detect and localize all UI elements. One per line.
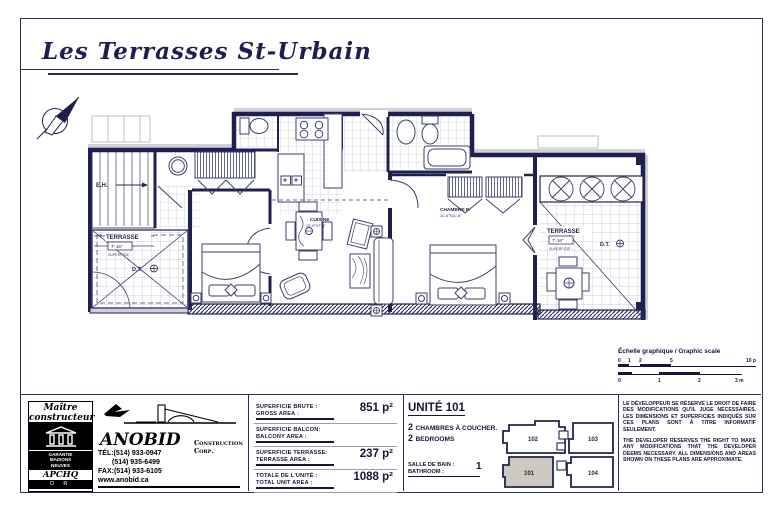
- title-underline-2: [48, 73, 298, 75]
- terrace-left-note: SUPERFICIE :: [108, 253, 132, 257]
- scale-feet-tick: 10 p: [746, 358, 756, 364]
- terrace-left-dim: 7'-16": [111, 244, 123, 249]
- scale-meter-tick: 1: [658, 378, 661, 384]
- areas-table: SUPERFICIE BRUTE : GROSS AREA : 851 p² S…: [252, 399, 399, 492]
- company-tel1: TÉL:(514) 933-0947: [98, 450, 161, 457]
- bedroom-left-furniture: [191, 244, 271, 303]
- terrace-right-dim: 7'-16": [552, 238, 564, 243]
- area-label-en: TERRASSE AREA :: [256, 457, 327, 464]
- unit-bath-label: SALLE DE BAIN : BATHROOM :: [408, 462, 454, 475]
- area-label-en: BALCONY AREA :: [256, 434, 321, 441]
- keyplan-label-103: 103: [588, 437, 599, 443]
- area-underline: [256, 487, 334, 489]
- kitchen-dim: 10'-0"X7'-6": [306, 224, 326, 228]
- bedrooms-count: 2: [408, 433, 413, 443]
- company-website[interactable]: www.anobid.ca: [98, 477, 149, 484]
- floor-plan-drawing: E.H.: [88, 106, 648, 338]
- area-value: 1088 p²: [353, 471, 393, 483]
- terrace-left-label: TERRASSE: [106, 235, 139, 241]
- keyplan-label-102: 102: [528, 437, 539, 443]
- bath-label-en: BATHROOM :: [408, 469, 454, 476]
- title-underline-1: [21, 69, 279, 70]
- company-fax: FAX:(514) 933-6105: [98, 468, 162, 475]
- table-row: SUPERFICIE TERRASSE: TERRASSE AREA : 237…: [254, 447, 397, 470]
- bedroom-label: CHAMBRE P.: [440, 207, 470, 213]
- bedrooms-fr-text: CHAMBRES À COUCHER.: [416, 425, 498, 432]
- badge-association: APCHQ: [29, 469, 92, 480]
- builder-certification-badge: Maître constructeur GARANTIE MAISONS NEU…: [28, 401, 93, 492]
- bath-count: 1: [476, 461, 482, 472]
- titleblock-divider: [20, 394, 761, 395]
- table-row: SUPERFICIE BALCON: BALCONY AREA :: [254, 424, 397, 447]
- legal-disclaimer: LE DÉVELOPPEUR SE RÉSERVE LE DROIT DE FA…: [623, 401, 756, 469]
- unit-bedrooms-fr: 2 CHAMBRES À COUCHER.: [408, 422, 497, 432]
- plan-sheet: Les Terrasses St-Urbain: [0, 0, 781, 505]
- scale-feet-seg: [618, 364, 629, 367]
- unit-title: UNITÉ 101: [408, 402, 465, 416]
- area-label: SUPERFICIE BRUTE : GROSS AREA :: [256, 404, 317, 417]
- area-value: 851 p²: [360, 402, 393, 414]
- legal-text-fr: LE DÉVELOPPEUR SE RÉSERVE LE DROIT DE FA…: [623, 401, 756, 433]
- area-label-en: GROSS AREA :: [256, 411, 317, 418]
- stairs-label: E.H.: [96, 183, 108, 189]
- bedroom-right-furniture: [416, 245, 510, 305]
- scale-meter-tick: 3 m: [735, 378, 744, 384]
- area-label-en: TOTAL UNIT AREA :: [256, 480, 317, 487]
- badge-guarantee: GARANTIE MAISONS NEUVES: [29, 450, 92, 469]
- project-title: Les Terrasses St-Urbain: [42, 38, 372, 65]
- company-block: ANOBID Construction Corp. TÉL:(514) 933-…: [96, 400, 246, 492]
- key-plan: 102 103 101 104: [501, 413, 615, 489]
- scale-feet-seg: [640, 364, 671, 367]
- area-label: SUPERFICIE TERRASSE: TERRASSE AREA :: [256, 450, 327, 463]
- graphic-scale-title: Échelle graphique / Graphic scale: [618, 348, 720, 355]
- terrace-right-label: TERRASSE: [547, 229, 580, 235]
- area-label-fr: SUPERFICIE BALCON:: [256, 427, 321, 434]
- area-label-fr: SUPERFICIE TERRASSE:: [256, 450, 327, 457]
- unit-bedrooms-en: 2 BEDROOMS: [408, 433, 454, 443]
- badge-title-line2: constructeur: [29, 413, 92, 423]
- area-underline: [256, 441, 334, 443]
- bedrooms-en-text: BEDROOMS: [416, 436, 455, 443]
- table-row: SUPERFICIE BRUTE : GROSS AREA : 851 p²: [254, 401, 397, 424]
- area-label-fr: SUPERFICIE BRUTE :: [256, 404, 317, 411]
- scale-feet-bar: [618, 366, 756, 367]
- company-suffix: Construction Corp.: [194, 439, 246, 455]
- scale-meter-tick: 0: [618, 378, 621, 384]
- table-row: TOTALE DE L'UNITÉ : TOTAL UNIT AREA : 10…: [254, 470, 397, 493]
- scale-meter-seg: [659, 372, 700, 375]
- company-name: ANOBID: [100, 430, 181, 450]
- area-underline: [256, 464, 334, 466]
- area-value: 237 p²: [360, 448, 393, 460]
- area-label: TOTALE DE L'UNITÉ : TOTAL UNIT AREA :: [256, 473, 317, 486]
- scale-meter-tick: 2: [698, 378, 701, 384]
- titleblock-vdivider: [248, 395, 249, 491]
- badge-title-line1: Maître: [29, 403, 92, 413]
- titleblock-vdivider: [403, 395, 404, 491]
- area-underline: [256, 418, 334, 420]
- keyplan-label-101: 101: [524, 471, 535, 477]
- company-underline: [98, 486, 240, 488]
- area-label-fr: TOTALE DE L'UNITÉ :: [256, 473, 317, 480]
- drain-left-label: D.T.: [132, 267, 142, 273]
- portico-icon: [29, 423, 92, 450]
- company-tel2: (514) 935-6499: [112, 459, 160, 466]
- bath-underline: [408, 476, 480, 477]
- north-arrow-icon: [30, 90, 86, 146]
- badge-level: O R: [29, 480, 92, 489]
- bath-label-fr: SALLE DE BAIN :: [408, 462, 454, 469]
- bedroom-dim: 11'-0"X11'-6": [440, 214, 462, 218]
- badge-guarantee-line: NEUVES: [29, 463, 92, 468]
- drain-right-label: D.T.: [600, 242, 610, 248]
- badge-title: Maître constructeur: [29, 402, 92, 423]
- keyplan-label-104: 104: [588, 471, 599, 477]
- graphic-scale: Échelle graphique / Graphic scale 0 1 2 …: [618, 348, 756, 390]
- unit-info: UNITÉ 101 2 CHAMBRES À COUCHER. 2 BEDROO…: [408, 399, 498, 492]
- company-logo: [96, 400, 246, 428]
- terrace-right-note: SUPERFICIE :: [549, 247, 573, 251]
- scale-meter-seg: [618, 372, 632, 375]
- area-label: SUPERFICIE BALCON: BALCONY AREA :: [256, 427, 321, 440]
- bedrooms-count: 2: [408, 422, 413, 432]
- kitchen-label: CUISINE: [310, 217, 330, 223]
- legal-text-en: THE DEVELOPER RESERVES THE RIGHT TO MAKE…: [623, 438, 756, 464]
- titleblock-vdivider: [618, 395, 619, 491]
